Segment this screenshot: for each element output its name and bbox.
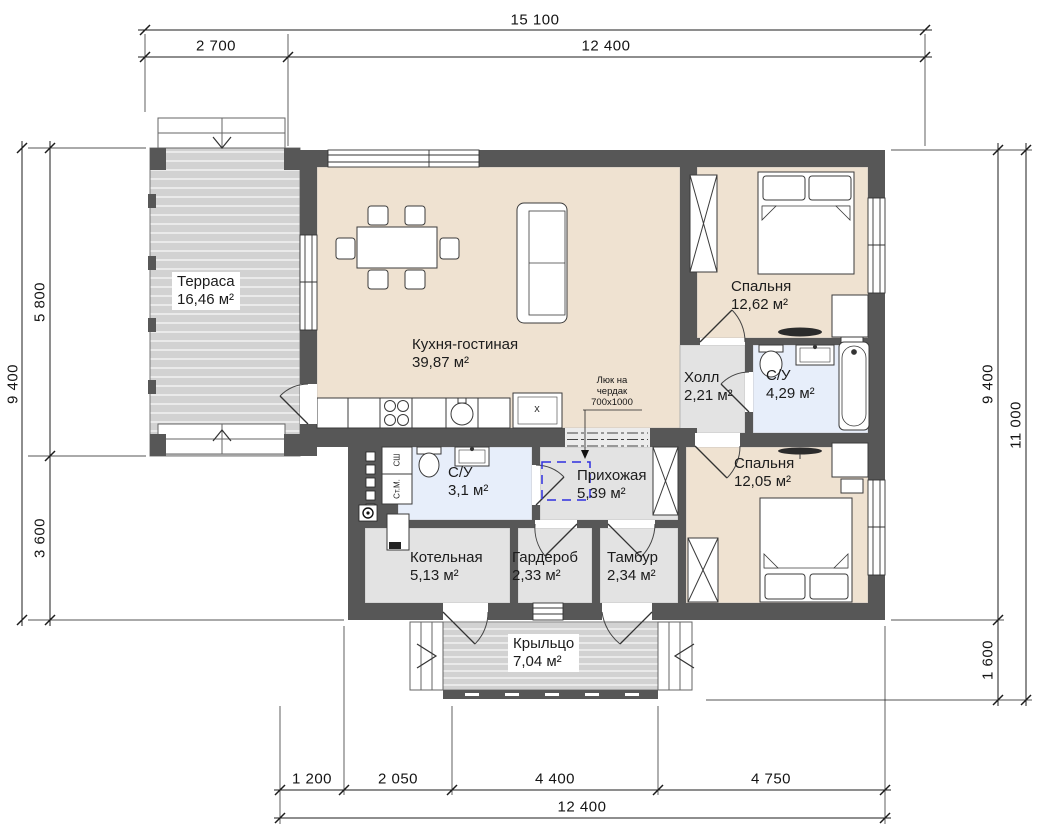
room-label-tambour: Тамбур 2,34 м² — [607, 549, 658, 585]
chair — [368, 206, 388, 225]
dim-left-total: 9 400 — [5, 364, 22, 404]
dim-top-seg1: 2 700 — [196, 38, 236, 55]
window-kitchen-top — [328, 150, 479, 167]
room-area: 7,04 м² — [513, 653, 574, 671]
dim-top-seg2: 12 400 — [582, 38, 631, 55]
room-label-boiler-room: Котельная 5,13 м² — [410, 549, 483, 585]
room-area: 2,34 м² — [607, 567, 658, 585]
attic-hatch-note-line1: Люк на — [591, 375, 633, 386]
toilet-bowl — [419, 453, 439, 477]
room-label-hall: Холл 2,21 м² — [684, 369, 733, 405]
room-area: 2,33 м² — [512, 567, 578, 585]
room-name: С/У — [766, 367, 815, 385]
room-area: 39,87 м² — [412, 354, 518, 372]
room-area: 5,39 м² — [577, 485, 647, 503]
chair — [368, 270, 388, 289]
chair — [440, 238, 459, 259]
desk-chair — [778, 328, 822, 337]
room-label-bathroom-small: С/У 3,1 м² — [448, 464, 488, 500]
room-name: Спальня — [734, 455, 794, 473]
floor-plan-drawing — [0, 0, 1043, 840]
window-wardrobe-room — [533, 603, 563, 620]
room-area: 16,46 м² — [177, 291, 235, 309]
kitchen-sink — [451, 403, 473, 425]
window-kitchen-terrace — [300, 235, 317, 330]
dim-right-seg1: 9 400 — [980, 364, 997, 404]
room-name: Прихожая — [577, 467, 647, 485]
dim-right-total: 11 000 — [1008, 401, 1025, 449]
dim-left-seg1: 5 800 — [32, 282, 49, 322]
tv — [778, 448, 822, 455]
room-label-kitchen-living: Кухня-гостиная 39,87 м² — [412, 336, 518, 372]
hob-burner — [398, 415, 409, 426]
kitchen-counter — [317, 398, 510, 428]
floor-plan-canvas: Терраса 16,46 м² Кухня-гостиная 39,87 м²… — [0, 0, 1043, 840]
dim-bottom-seg3: 4 400 — [535, 771, 575, 788]
dim-bottom-seg2: 2 050 — [378, 771, 418, 788]
desk — [832, 295, 868, 337]
room-name: Крыльцо — [513, 635, 574, 653]
room-label-terrace: Терраса 16,46 м² — [172, 272, 240, 310]
room-area: 4,29 м² — [766, 385, 815, 403]
room-name: Спальня — [731, 278, 791, 296]
window-bedroom-top — [868, 198, 885, 293]
label-dryer: СШ — [393, 453, 402, 466]
room-label-entry-hall: Прихожая 5,39 м² — [577, 467, 647, 503]
room-area: 12,05 м² — [734, 473, 794, 491]
desk-shelf — [841, 479, 863, 493]
dim-bottom-seg1: 1 200 — [292, 771, 332, 788]
dim-right-seg2: 1 600 — [980, 640, 997, 680]
room-area: 3,1 м² — [448, 482, 488, 500]
label-washer: Ст.М. — [393, 479, 402, 499]
pillow — [765, 574, 805, 599]
room-name: Гардероб — [512, 549, 578, 567]
attic-hatch-note: Люк на чердак 700x1000 — [591, 375, 633, 408]
pillow — [809, 176, 851, 200]
kitchen-unit-mark: x — [534, 403, 540, 415]
room-name: Кухня-гостиная — [412, 336, 518, 354]
pillow — [763, 176, 805, 200]
dim-left-seg2: 3 600 — [32, 518, 49, 558]
room-name: Терраса — [177, 273, 235, 291]
chair — [336, 238, 355, 259]
kitchen-sink-tap — [458, 398, 466, 403]
room-name: Холл — [684, 369, 733, 387]
chair — [405, 270, 425, 289]
room-area: 12,62 м² — [731, 296, 791, 314]
boiler-unit — [387, 514, 409, 550]
room-label-bathroom-big: С/У 4,29 м² — [766, 367, 815, 403]
bathtub-tap — [852, 350, 857, 355]
duct-shaft — [653, 447, 678, 515]
hob-burner — [385, 401, 396, 412]
room-area: 2,21 м² — [684, 387, 733, 405]
attic-hatch-note-line2: чердак — [591, 386, 633, 397]
room-label-porch: Крыльцо 7,04 м² — [508, 634, 579, 672]
room-name: С/У — [448, 464, 488, 482]
open-passage — [565, 428, 650, 447]
room-label-bedroom-top: Спальня 12,62 м² — [731, 278, 791, 314]
dim-top-total: 15 100 — [511, 12, 560, 29]
dim-ticks-top — [140, 25, 930, 62]
dim-bottom-seg4: 4 750 — [751, 771, 791, 788]
room-name: Тамбур — [607, 549, 658, 567]
attic-hatch-note-size: 700x1000 — [591, 397, 633, 408]
window-bedroom-bottom — [868, 480, 885, 575]
room-area: 5,13 м² — [410, 567, 483, 585]
pillow — [810, 574, 848, 599]
sofa — [517, 203, 567, 323]
hob-burner — [385, 415, 396, 426]
room-label-bedroom-bottom: Спальня 12,05 м² — [734, 455, 794, 491]
room-label-wardrobe-room: Гардероб 2,33 м² — [512, 549, 578, 585]
room-name: Котельная — [410, 549, 483, 567]
bathtub-inner — [842, 346, 866, 426]
desk — [832, 443, 868, 477]
chair — [405, 206, 425, 225]
hob-burner — [398, 401, 409, 412]
dim-bottom-total: 12 400 — [558, 799, 607, 816]
dining-table — [357, 227, 437, 268]
